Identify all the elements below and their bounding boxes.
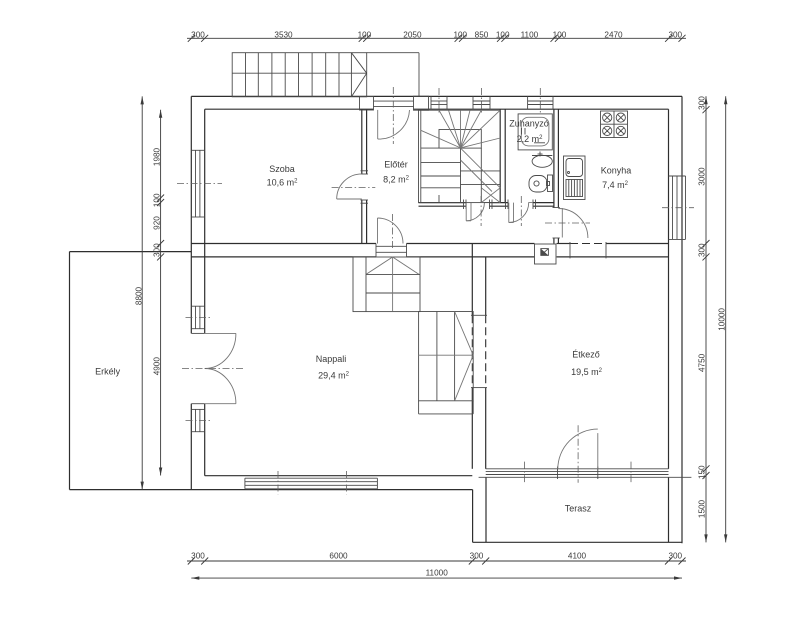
svg-text:3000: 3000 [697, 167, 706, 186]
svg-text:4100: 4100 [568, 551, 587, 560]
svg-text:300: 300 [470, 551, 484, 560]
svg-text:1980: 1980 [153, 147, 162, 166]
svg-text:Nappali: Nappali [316, 354, 347, 364]
svg-text:100: 100 [553, 30, 567, 39]
svg-text:29,4 m2: 29,4 m2 [318, 371, 350, 381]
svg-text:6000: 6000 [329, 551, 348, 560]
svg-text:10000: 10000 [717, 308, 726, 331]
svg-text:2470: 2470 [604, 30, 623, 39]
svg-text:3530: 3530 [274, 30, 293, 39]
svg-text:Erkély: Erkély [95, 367, 121, 377]
svg-text:1500: 1500 [697, 499, 706, 518]
svg-text:1100: 1100 [521, 30, 539, 39]
svg-text:300: 300 [668, 551, 682, 560]
svg-text:Terasz: Terasz [565, 504, 592, 514]
svg-text:2050: 2050 [403, 30, 422, 39]
svg-text:850: 850 [475, 30, 489, 39]
svg-text:300: 300 [153, 243, 162, 257]
svg-text:4900: 4900 [153, 357, 162, 376]
svg-text:300: 300 [697, 243, 706, 257]
svg-text:4750: 4750 [697, 353, 706, 372]
svg-text:100: 100 [358, 30, 372, 39]
svg-text:8800: 8800 [135, 286, 144, 305]
svg-text:100: 100 [496, 30, 510, 39]
svg-text:100: 100 [153, 193, 162, 207]
svg-text:300: 300 [668, 30, 682, 39]
svg-text:300: 300 [697, 96, 706, 110]
svg-text:300: 300 [191, 30, 205, 39]
svg-text:10,6 m2: 10,6 m2 [267, 178, 299, 188]
svg-text:Étkező: Étkező [572, 350, 600, 360]
svg-text:11000: 11000 [426, 569, 449, 578]
svg-text:19,5 m2: 19,5 m2 [571, 367, 603, 377]
svg-text:150: 150 [697, 465, 706, 479]
svg-text:Szoba: Szoba [269, 164, 295, 174]
svg-text:920: 920 [153, 216, 162, 230]
svg-text:300: 300 [191, 551, 205, 560]
svg-text:Előtér: Előtér [384, 160, 408, 170]
svg-text:100: 100 [453, 30, 467, 39]
svg-text:Konyha: Konyha [601, 166, 632, 176]
svg-text:Zuhanyzó: Zuhanyzó [509, 119, 549, 129]
